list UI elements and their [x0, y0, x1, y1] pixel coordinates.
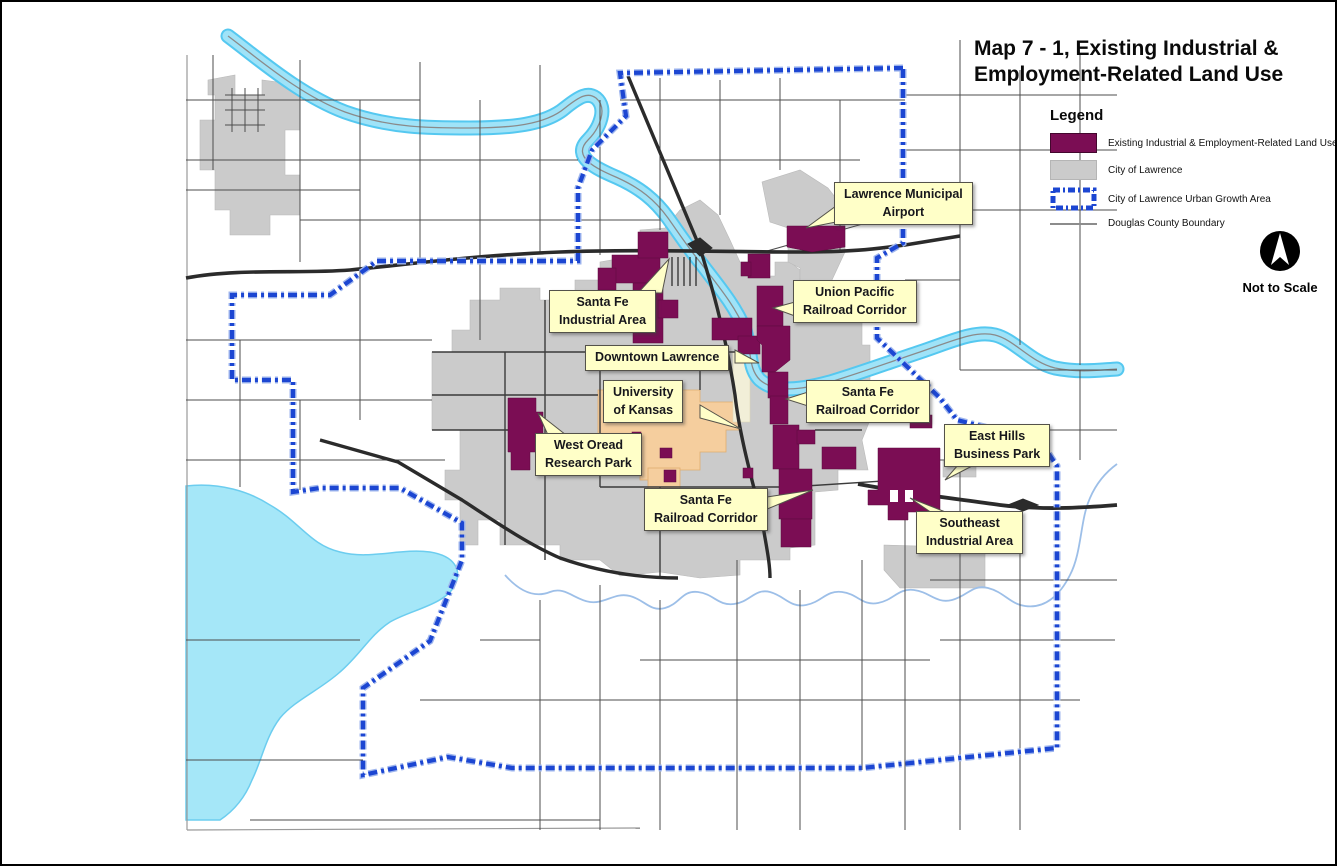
uga-swatch — [1050, 187, 1097, 211]
industrial-swatch — [1050, 133, 1097, 153]
label-lawrence-municipal-airport: Lawrence Municipal Airport — [834, 182, 973, 225]
label-santa-fe-railroad-corridor-north: Santa Fe Railroad Corridor — [806, 380, 930, 423]
county-boundary-swatch — [1050, 223, 1097, 225]
label-university-of-kansas: University of Kansas — [603, 380, 683, 423]
legend-item-county: Douglas County Boundary — [1050, 218, 1337, 229]
label-union-pacific-railroad-corridor: Union Pacific Railroad Corridor — [793, 280, 917, 323]
legend-item-uga: City of Lawrence Urban Growth Area — [1050, 187, 1337, 211]
city-swatch — [1050, 160, 1097, 180]
not-to-scale-caption: Not to Scale — [1236, 280, 1324, 295]
legend: Legend Existing Industrial & Employment-… — [1050, 107, 1337, 236]
north-arrow-icon — [1258, 229, 1302, 273]
map-document: Map 7 - 1, Existing Industrial & Employm… — [0, 0, 1337, 866]
label-southeast-industrial-area: Southeast Industrial Area — [916, 511, 1023, 554]
legend-heading: Legend — [1050, 107, 1337, 124]
page-title: Map 7 - 1, Existing Industrial & Employm… — [974, 36, 1334, 87]
label-east-hills-business-park: East Hills Business Park — [944, 424, 1050, 467]
legend-item-city: City of Lawrence — [1050, 160, 1337, 180]
north-arrow: Not to Scale — [1236, 229, 1324, 295]
label-west-oread-research-park: West Oread Research Park — [535, 433, 642, 476]
label-santa-fe-industrial-area: Santa Fe Industrial Area — [549, 290, 656, 333]
label-santa-fe-railroad-corridor-south: Santa Fe Railroad Corridor — [644, 488, 768, 531]
label-downtown-lawrence: Downtown Lawrence — [585, 345, 729, 371]
legend-item-industrial: Existing Industrial & Employment-Related… — [1050, 133, 1337, 153]
